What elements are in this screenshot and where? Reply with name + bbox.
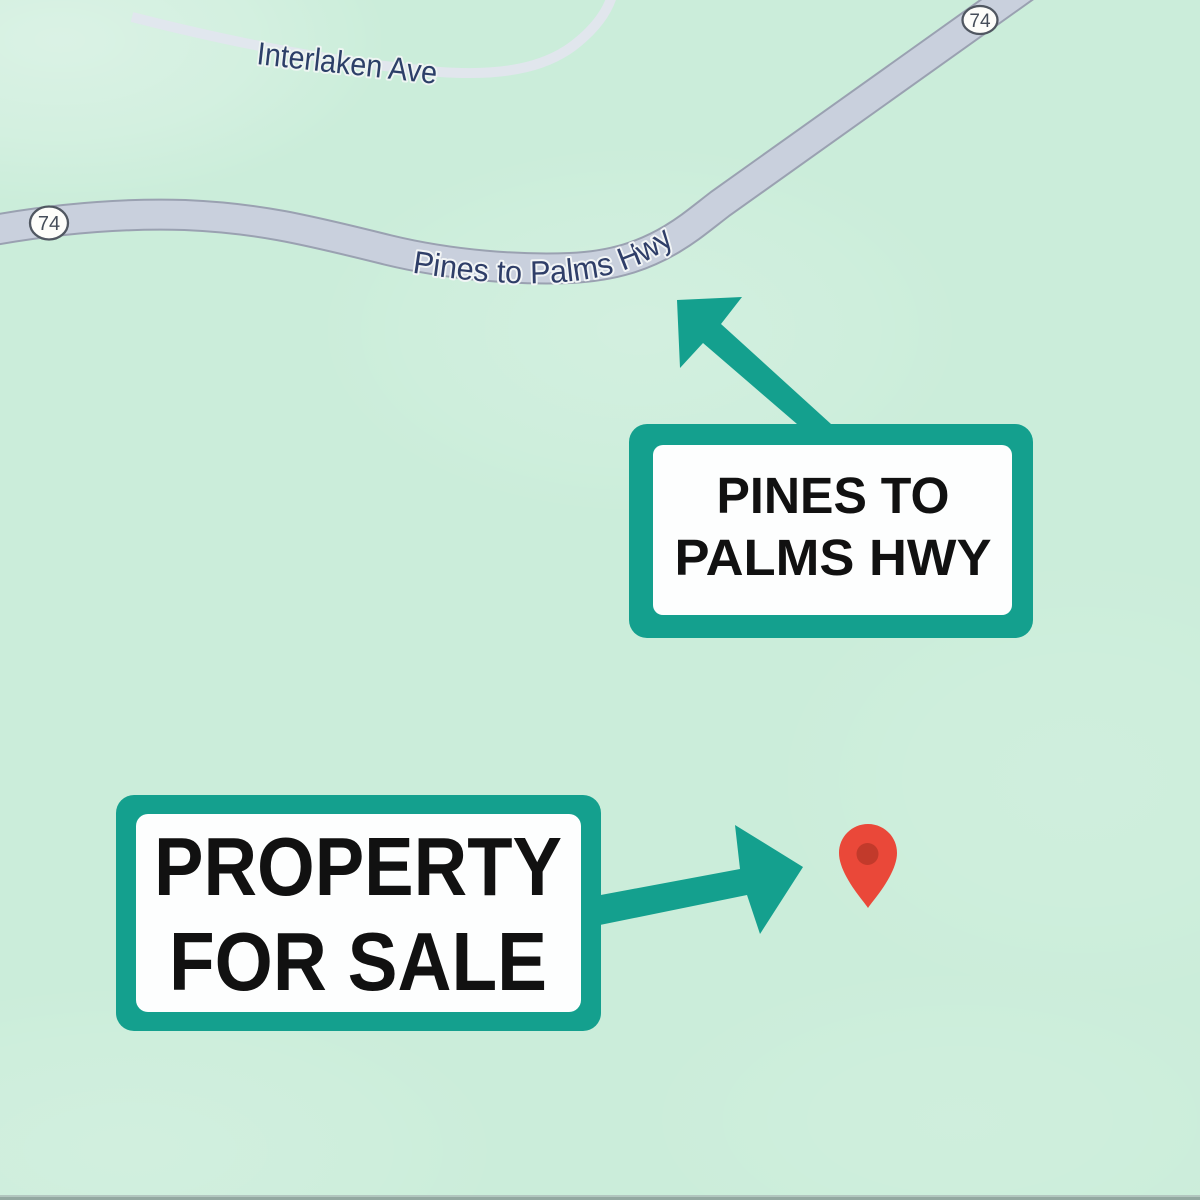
svg-text:74: 74 bbox=[38, 213, 60, 235]
svg-text:PINES TO: PINES TO bbox=[717, 467, 950, 524]
svg-text:FOR SALE: FOR SALE bbox=[169, 915, 547, 1008]
svg-text:PROPERTY: PROPERTY bbox=[154, 820, 562, 913]
svg-text:PALMS HWY: PALMS HWY bbox=[675, 529, 992, 586]
svg-text:74: 74 bbox=[969, 11, 991, 32]
